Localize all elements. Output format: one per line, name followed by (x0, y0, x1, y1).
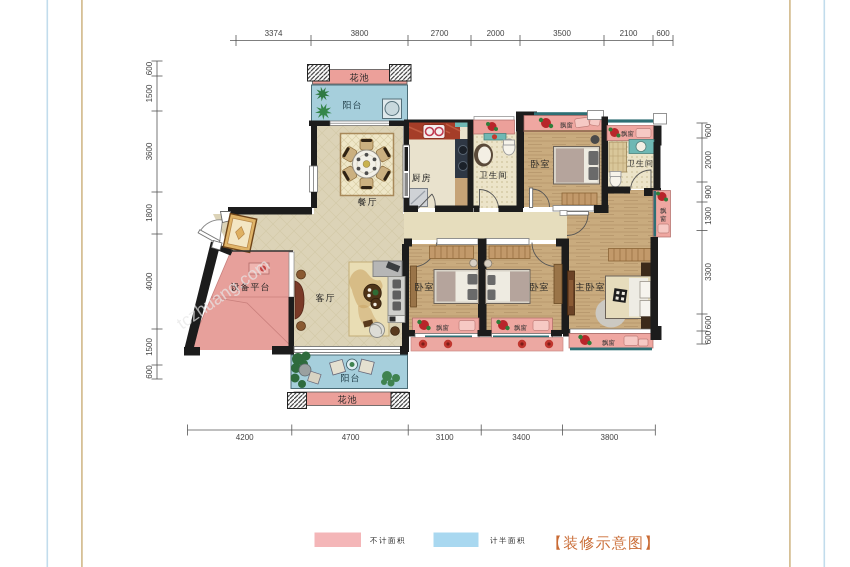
svg-text:600: 600 (704, 330, 713, 344)
svg-text:2700: 2700 (431, 29, 449, 38)
svg-text:2000: 2000 (487, 29, 505, 38)
svg-text:600: 600 (656, 29, 670, 38)
svg-text:3300: 3300 (704, 263, 713, 281)
svg-text:3400: 3400 (512, 433, 530, 442)
svg-text:2000: 2000 (704, 151, 713, 169)
svg-text:3800: 3800 (601, 433, 619, 442)
svg-text:4700: 4700 (342, 433, 360, 442)
svg-text:1500: 1500 (145, 338, 154, 356)
svg-text:600: 600 (145, 61, 154, 75)
svg-text:600: 600 (704, 315, 713, 329)
svg-text:1800: 1800 (145, 204, 154, 222)
svg-text:600: 600 (704, 123, 713, 137)
svg-text:4200: 4200 (236, 433, 254, 442)
svg-text:900: 900 (704, 185, 713, 199)
svg-text:3100: 3100 (436, 433, 454, 442)
svg-text:3800: 3800 (351, 29, 369, 38)
svg-text:3374: 3374 (265, 29, 283, 38)
svg-text:3600: 3600 (145, 142, 154, 160)
svg-text:3500: 3500 (553, 29, 571, 38)
svg-text:1300: 1300 (704, 207, 713, 225)
svg-text:2100: 2100 (620, 29, 638, 38)
svg-text:4000: 4000 (145, 272, 154, 290)
svg-text:600: 600 (145, 365, 154, 379)
svg-text:1500: 1500 (145, 84, 154, 102)
